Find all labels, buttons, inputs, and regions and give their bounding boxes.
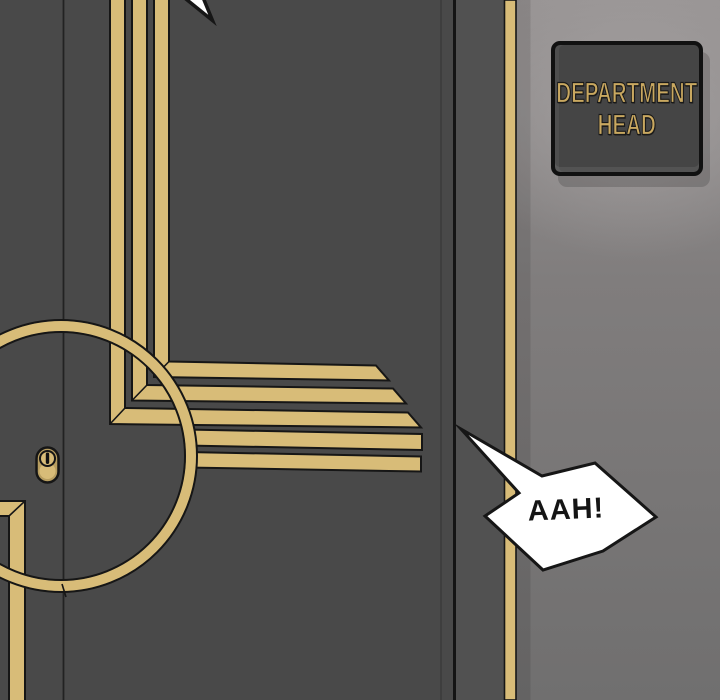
door (0, 0, 455, 700)
door-stripe-ray2 (186, 452, 421, 472)
department-head-sign: DEPARTMENT HEAD (551, 41, 703, 176)
key-slot (46, 453, 49, 465)
wall-trim-shadow (517, 0, 531, 700)
door-frame (456, 0, 505, 700)
keyhole-icon (37, 448, 59, 483)
comic-panel: DEPARTMENT HEAD AAH! (0, 0, 720, 700)
wall-gold-trim (505, 0, 517, 700)
sign-line-1: DEPARTMENT (557, 77, 698, 109)
sign-line-2: HEAD (557, 109, 698, 141)
speech-bubble-text: AAH! (499, 491, 632, 530)
door-stripe-ray1 (186, 430, 422, 451)
sign-text: DEPARTMENT HEAD (557, 77, 698, 141)
